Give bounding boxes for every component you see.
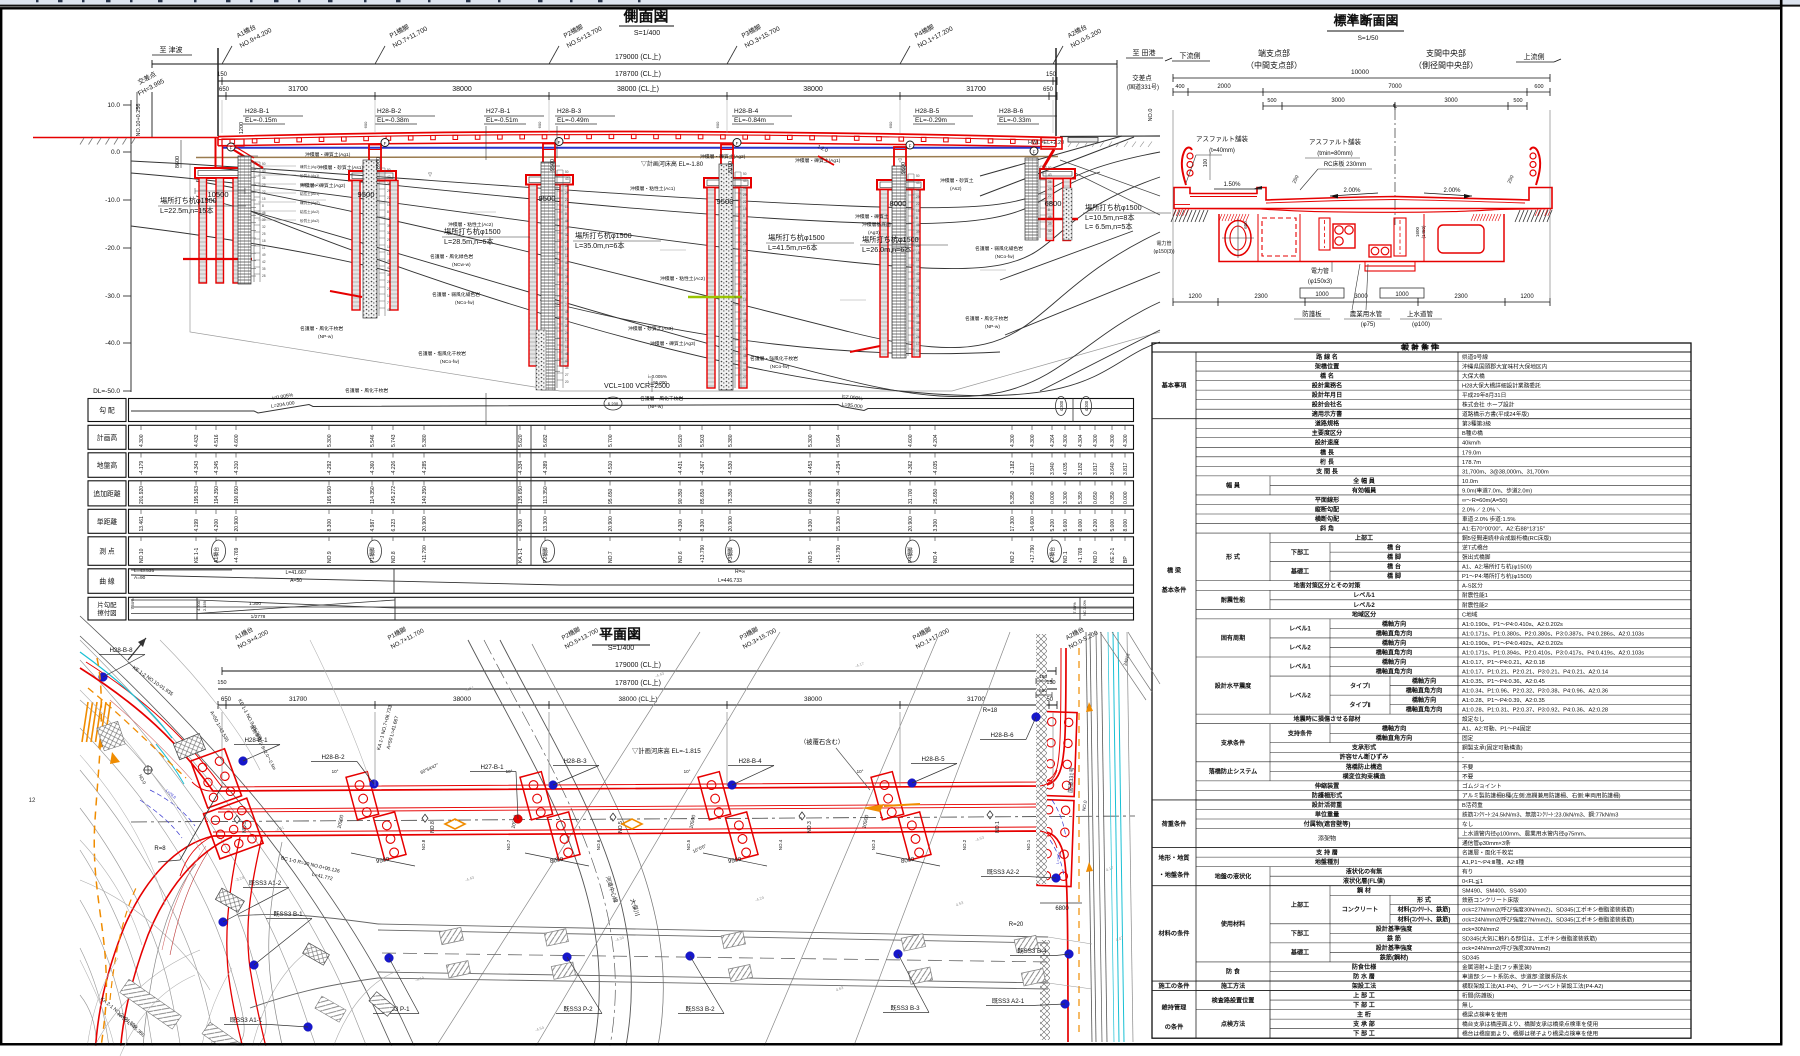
svg-text:9500: 9500 <box>550 159 556 171</box>
svg-text:∞〜R=60m(A=50): ∞〜R=60m(A=50) <box>1462 498 1508 504</box>
svg-text:沖積層・礫質土(Ag2): 沖積層・礫質土(Ag2) <box>700 153 746 160</box>
svg-text:20: 20 <box>565 380 569 384</box>
svg-text:4.200: 4.200 <box>214 519 220 532</box>
svg-text:32: 32 <box>387 231 391 235</box>
svg-text:9500: 9500 <box>717 197 734 206</box>
svg-text:A2橋台: A2橋台 <box>1049 547 1056 563</box>
svg-text:4.300: 4.300 <box>1110 434 1116 447</box>
svg-text:25.650: 25.650 <box>933 488 939 504</box>
svg-text:25: 25 <box>387 238 391 242</box>
svg-text:地形・地質: 地形・地質 <box>1159 854 1190 862</box>
svg-text:コンクリート: コンクリート <box>1342 906 1379 914</box>
svg-text:NO.5: NO.5 <box>808 551 814 563</box>
svg-text:形 式: 形 式 <box>1226 553 1241 561</box>
svg-text:41.350: 41.350 <box>836 488 842 504</box>
svg-text:場所打ち杭φ1500: 場所打ち杭φ1500 <box>768 233 825 242</box>
svg-text:4.300: 4.300 <box>139 434 145 447</box>
svg-text:A1:0.190s、P1〜P4:0.410s、A2:0.20: A1:0.190s、P1〜P4:0.410s、A2:0.202s <box>1462 622 1563 628</box>
svg-text:不要: 不要 <box>1462 773 1474 780</box>
svg-text:32: 32 <box>1048 229 1052 233</box>
svg-text:下 部 工: 下 部 工 <box>1353 1030 1375 1038</box>
svg-text:SM490、SM400、SS400: SM490、SM400、SS400 <box>1462 889 1527 895</box>
svg-text:14: 14 <box>565 296 569 300</box>
svg-text:鋼 材: 鋼 材 <box>1356 887 1371 895</box>
svg-text:1/2778: 1/2778 <box>251 614 266 620</box>
svg-text:42: 42 <box>916 272 920 276</box>
svg-text:材料の条件: 材料の条件 <box>1158 929 1191 937</box>
svg-text:190.650: 190.650 <box>234 486 240 504</box>
svg-text:8.000: 8.000 <box>1123 519 1129 532</box>
svg-text:46: 46 <box>916 223 920 227</box>
svg-text:4.304: 4.304 <box>1078 434 1084 447</box>
svg-text:橋 脚: 橋 脚 <box>1387 553 1401 561</box>
svg-text:(国道331号): (国道331号) <box>1127 83 1159 91</box>
svg-text:-10.0: -10.0 <box>105 197 120 204</box>
svg-text:既SS3 B-3: 既SS3 B-3 <box>890 1005 920 1012</box>
svg-text:4.300: 4.300 <box>1123 434 1129 447</box>
svg-text:材料(ｺﾝｸﾘｰﾄ、鉄筋): 材料(ｺﾝｸﾘｰﾄ、鉄筋) <box>1397 915 1451 923</box>
svg-text:85.650: 85.650 <box>700 488 706 504</box>
svg-text:49: 49 <box>262 253 266 257</box>
svg-text:A-S区分: A-S区分 <box>1462 582 1483 590</box>
svg-text:50: 50 <box>916 174 920 178</box>
svg-text:鋼製支承(固定可動構造): 鋼製支承(固定可動構造) <box>1462 744 1523 752</box>
svg-text:(NCo-fw): (NCo-fw) <box>995 254 1015 260</box>
svg-text:P1橋脚: P1橋脚 <box>369 547 376 563</box>
svg-text:600: 600 <box>888 121 893 128</box>
svg-text:車道部:シート系防水、歩道部:塗膜系防水: 車道部:シート系防水、歩道部:塗膜系防水 <box>1462 972 1568 980</box>
svg-text:-40.0: -40.0 <box>105 340 120 347</box>
svg-text:施工の条件: 施工の条件 <box>1159 982 1191 990</box>
svg-text:名護層・風化千枚岩: 名護層・風化千枚岩 <box>640 395 683 402</box>
svg-text:1.50%: 1.50% <box>1223 182 1241 188</box>
svg-text:場所打ち杭φ1500: 場所打ち杭φ1500 <box>1085 203 1142 212</box>
svg-text:5.200: 5.200 <box>1050 519 1056 532</box>
svg-text:1000: 1000 <box>1395 292 1409 298</box>
svg-text:L=22.5m,n=15本: L=22.5m,n=15本 <box>160 206 214 215</box>
svg-text:固有周期: 固有周期 <box>1221 634 1245 642</box>
svg-text:20.900: 20.900 <box>422 516 428 532</box>
svg-text:600: 600 <box>1243 221 1248 229</box>
svg-text:8: 8 <box>387 210 389 214</box>
svg-text:H28-B-1: H28-B-1 <box>245 108 270 115</box>
svg-text:NO.1: NO.1 <box>1063 551 1069 563</box>
svg-text:4.600: 4.600 <box>234 434 240 447</box>
svg-text:H28-B-5: H28-B-5 <box>915 108 940 115</box>
svg-text:落橋防止構造: 落橋防止構造 <box>1346 763 1383 771</box>
svg-text:橋軸方向: 橋軸方向 <box>1382 658 1406 666</box>
svg-text:支持条件: 支持条件 <box>1287 729 1312 737</box>
svg-text:29: 29 <box>743 193 747 197</box>
svg-text:15: 15 <box>565 205 569 209</box>
svg-text:8: 8 <box>565 212 567 216</box>
svg-text:(NP-w): (NP-w) <box>985 324 1000 330</box>
svg-text:沖積層・砂質土(As3): 沖積層・砂質土(As3) <box>628 325 673 332</box>
svg-text:28: 28 <box>387 280 391 284</box>
svg-text:18: 18 <box>565 247 569 251</box>
svg-text:平面線形: 平面線形 <box>1315 496 1340 504</box>
svg-text:橋 脚: 橋 脚 <box>1387 572 1401 580</box>
svg-text:基礎工: 基礎工 <box>1290 949 1309 957</box>
svg-text:31: 31 <box>743 326 747 330</box>
svg-text:NO.3: NO.3 <box>871 839 876 850</box>
svg-text:名護層・風化千枚岩: 名護層・風化千枚岩 <box>965 315 1008 322</box>
svg-text:NO.3: NO.3 <box>807 821 813 833</box>
svg-text:10500: 10500 <box>207 190 228 199</box>
svg-text:7.50%: 7.50% <box>130 598 135 610</box>
svg-text:路 線 名: 路 線 名 <box>1316 353 1338 361</box>
svg-text:防 水 層: 防 水 層 <box>1353 972 1375 980</box>
svg-text:-4.285: -4.285 <box>422 461 428 475</box>
svg-text:+17.790: +17.790 <box>1030 545 1036 563</box>
svg-text:擦付図: 擦付図 <box>97 608 116 617</box>
svg-text:31700: 31700 <box>966 86 986 93</box>
svg-text:H28-B-3: H28-B-3 <box>563 758 587 765</box>
svg-text:2300: 2300 <box>1454 294 1468 300</box>
svg-text:荷重条件: 荷重条件 <box>1161 820 1188 828</box>
svg-text:-4.431: -4.431 <box>678 461 684 475</box>
svg-text:既SS3 A2-2: 既SS3 A2-2 <box>987 869 1020 876</box>
svg-text:P3橋脚: P3橋脚 <box>727 547 734 563</box>
svg-text:150: 150 <box>1039 674 1047 680</box>
svg-text:4.432: 4.432 <box>194 434 200 447</box>
svg-text:沖積層・砂質土: 沖積層・砂質土 <box>940 177 974 184</box>
svg-text:-4.389: -4.389 <box>543 461 549 475</box>
svg-text:8: 8 <box>1048 208 1050 212</box>
svg-text:SD345: SD345 <box>1462 955 1479 961</box>
svg-text:90.350: 90.350 <box>678 488 684 504</box>
svg-text:砂質土(As2): 砂質土(As2) <box>300 218 319 223</box>
svg-text:NO.4: NO.4 <box>778 839 783 850</box>
svg-text:1200: 1200 <box>1520 294 1534 300</box>
svg-text:（中間支点部）: （中間支点部） <box>1246 60 1302 70</box>
svg-text:NO.7: NO.7 <box>506 839 511 850</box>
svg-text:H28大保大橋詳細設計業務委託: H28大保大橋詳細設計業務委託 <box>1462 382 1541 390</box>
svg-text:既SS3 A1-2: 既SS3 A1-2 <box>249 880 282 887</box>
svg-text:14: 14 <box>743 298 747 302</box>
svg-text:15.300: 15.300 <box>836 516 842 532</box>
svg-text:地盤高: 地盤高 <box>97 461 118 470</box>
svg-text:端支点部: 端支点部 <box>1258 48 1290 58</box>
svg-text:(NCw-w): (NCw-w) <box>452 262 471 268</box>
svg-text:8: 8 <box>262 204 264 208</box>
svg-text:株式会社 ホープ設計: 株式会社 ホープ設計 <box>1462 401 1515 409</box>
svg-text:耐震性能2: 耐震性能2 <box>1462 601 1488 609</box>
svg-text:H28-B-8: H28-B-8 <box>109 647 133 654</box>
svg-text:NO.10: NO.10 <box>139 548 145 563</box>
svg-text:通信管φ30mm×3条: 通信管φ30mm×3条 <box>1462 839 1511 847</box>
svg-text:5.380: 5.380 <box>728 434 734 447</box>
svg-text:500: 500 <box>1513 98 1522 104</box>
svg-text:支 間 長: 支 間 長 <box>1315 467 1339 475</box>
svg-text:礫質土(Ag2): 礫質土(Ag2) <box>300 182 320 187</box>
svg-text:沖積層・礫質土: 沖積層・礫質土 <box>855 213 889 220</box>
svg-text:防食仕様: 防食仕様 <box>1352 963 1377 971</box>
svg-text:39: 39 <box>916 230 920 234</box>
svg-text:名護層・強風化千枚岩: 名護層・強風化千枚岩 <box>750 355 798 362</box>
svg-text:31,700m、3@38,000m、31,700m: 31,700m、3@38,000m、31,700m <box>1462 469 1549 475</box>
svg-text:1600: 1600 <box>1415 226 1420 237</box>
svg-text:22: 22 <box>743 200 747 204</box>
svg-text:18: 18 <box>743 249 747 253</box>
svg-text:勾 配: 勾 配 <box>99 406 115 415</box>
svg-text:21: 21 <box>916 293 920 297</box>
svg-text:0<FL≦1: 0<FL≦1 <box>1462 879 1483 885</box>
svg-text:(Ag3): (Ag3) <box>868 230 880 236</box>
svg-text:沖積層・砂質土(As1): 沖積層・砂質土(As1) <box>318 164 363 171</box>
svg-text:13.461: 13.461 <box>139 516 145 532</box>
svg-text:(t=40mm): (t=40mm) <box>1209 148 1235 154</box>
svg-text:名護層・弱風化繊色岩: 名護層・弱風化繊色岩 <box>432 291 480 298</box>
svg-text:NO.10+0.256: NO.10+0.256 <box>136 104 142 137</box>
svg-text:-4.530: -4.530 <box>728 461 734 475</box>
svg-text:(NP-w): (NP-w) <box>648 404 663 410</box>
svg-text:5.743: 5.743 <box>391 434 397 447</box>
svg-text:43: 43 <box>387 175 391 179</box>
svg-text:粘性土(Ac2): 粘性土(Ac2) <box>300 209 319 214</box>
svg-text:支承形式: 支承形式 <box>1351 744 1377 752</box>
svg-text:H28-B-2: H28-B-2 <box>321 754 345 761</box>
svg-text:A=90: A=90 <box>134 575 146 581</box>
svg-text:18: 18 <box>387 245 391 249</box>
svg-text:伸縮装置: 伸縮装置 <box>1314 782 1339 790</box>
svg-text:計画高: 計画高 <box>97 433 118 442</box>
svg-text:既SS3 A2-1: 既SS3 A2-1 <box>992 998 1025 1005</box>
svg-text:27: 27 <box>565 373 569 377</box>
svg-text:17: 17 <box>743 340 747 344</box>
svg-text:201.920: 201.920 <box>139 486 145 504</box>
svg-text:9500: 9500 <box>539 194 556 203</box>
svg-text:11: 11 <box>916 258 920 262</box>
svg-text:40km/h: 40km/h <box>1462 441 1481 447</box>
svg-text:3.817: 3.817 <box>1123 462 1129 475</box>
svg-text:F: F <box>909 144 912 149</box>
svg-text:7: 7 <box>565 303 567 307</box>
svg-text:8900: 8900 <box>376 157 382 169</box>
svg-text:25: 25 <box>743 242 747 246</box>
svg-text:32: 32 <box>916 237 920 241</box>
svg-text:許容せん断ひずみ: 許容せん断ひずみ <box>1340 753 1389 761</box>
svg-text:24: 24 <box>916 335 920 339</box>
svg-text:KA 1-1: KA 1-1 <box>518 548 524 563</box>
svg-text:46: 46 <box>565 219 569 223</box>
svg-text:単位重量: 単位重量 <box>1315 810 1339 818</box>
svg-text:形 式: 形 式 <box>1417 896 1432 904</box>
svg-text:31: 31 <box>565 324 569 328</box>
svg-text:38000 (CL上): 38000 (CL上) <box>617 84 659 93</box>
svg-text:39: 39 <box>387 224 391 228</box>
svg-text:L= 6.5m,n=5本: L= 6.5m,n=5本 <box>1085 222 1133 231</box>
svg-text:落橋防止システム: 落橋防止システム <box>1209 768 1258 776</box>
svg-text:5.300: 5.300 <box>327 434 333 447</box>
svg-text:28: 28 <box>743 284 747 288</box>
svg-text:145.272: 145.272 <box>391 486 397 504</box>
svg-text:タイプⅠ: タイプⅠ <box>1350 682 1370 690</box>
svg-text:橋台支承は橋座面より、橋脚支承は橋梁点検車を使用: 橋台支承は橋座面より、橋脚支承は橋梁点検車を使用 <box>1462 1020 1598 1028</box>
svg-text:F: F <box>736 141 739 146</box>
svg-text:48: 48 <box>743 354 747 358</box>
svg-text:+11.790: +11.790 <box>422 545 428 563</box>
svg-text:(NCo-fw): (NCo-fw) <box>770 364 790 370</box>
svg-text:4.204: 4.204 <box>933 434 939 447</box>
svg-text:液状化層(FL値): 液状化層(FL値) <box>1343 877 1385 885</box>
svg-text:道路規格: 道路規格 <box>1315 420 1340 428</box>
svg-text:既SS3 B-2: 既SS3 B-2 <box>685 1006 715 1013</box>
svg-text:1000: 1000 <box>1315 292 1329 298</box>
svg-text:農業用水管: 農業用水管 <box>1350 309 1383 318</box>
svg-text:0.350: 0.350 <box>1110 491 1116 504</box>
svg-text:4.200: 4.200 <box>196 600 201 611</box>
svg-text:逆T式橋台: 逆T式橋台 <box>1462 544 1489 552</box>
svg-text:4.300: 4.300 <box>1063 434 1069 447</box>
svg-text:(1450): (1450) <box>1421 225 1426 239</box>
svg-text:150: 150 <box>1046 72 1057 78</box>
svg-text:設計会社名: 設計会社名 <box>1312 401 1342 409</box>
svg-text:下部工: 下部工 <box>1291 548 1309 556</box>
svg-text:10°: 10° <box>684 769 691 774</box>
svg-text:17: 17 <box>916 342 920 346</box>
svg-text:設計年月日: 設計年月日 <box>1312 391 1342 399</box>
svg-text:NO.5: NO.5 <box>686 839 691 850</box>
svg-text:S=1/400: S=1/400 <box>608 645 634 652</box>
svg-text:-4.334: -4.334 <box>518 461 524 475</box>
svg-text:C地域: C地域 <box>1462 610 1478 618</box>
svg-text:F: F <box>558 140 561 145</box>
svg-text:2.0% ⟋ 2.0% ⟍: 2.0% ⟋ 2.0% ⟍ <box>1462 506 1501 513</box>
svg-text:沖積層・礫質土(Ag3): 沖積層・礫質土(Ag3) <box>650 340 696 347</box>
svg-text:名護層・弱風化繊色岩: 名護層・弱風化繊色岩 <box>975 245 1023 252</box>
svg-text:鉄筋(鋼材): 鉄筋(鋼材) <box>1380 953 1408 961</box>
svg-text:大保大橋: 大保大橋 <box>1462 372 1485 380</box>
svg-text:8000: 8000 <box>890 199 907 208</box>
svg-text:5.546: 5.546 <box>370 434 376 447</box>
svg-text:50: 50 <box>262 162 266 166</box>
svg-text:検査路設置位置: 検査路設置位置 <box>1212 996 1255 1004</box>
svg-text:設計業務名: 設計業務名 <box>1312 382 1342 390</box>
svg-text:8: 8 <box>916 216 918 220</box>
svg-text:・地盤条件: ・地盤条件 <box>1159 871 1191 879</box>
svg-text:28: 28 <box>262 274 266 278</box>
svg-text:耐震性能1: 耐震性能1 <box>1462 591 1488 599</box>
svg-text:10: 10 <box>916 349 920 353</box>
svg-text:14: 14 <box>387 294 391 298</box>
svg-text:縦断勾配: 縦断勾配 <box>1315 505 1340 513</box>
svg-text:179.0m: 179.0m <box>1462 450 1481 456</box>
svg-text:P1〜P4:場所打ち杭(φ1500): P1〜P4:場所打ち杭(φ1500) <box>1462 572 1532 580</box>
svg-text:-4.360: -4.360 <box>370 461 376 475</box>
svg-text:橋 台: 橋 台 <box>1387 563 1401 571</box>
svg-text:道路橋示方書(平成24年版): 道路橋示方書(平成24年版) <box>1462 410 1529 418</box>
svg-text:R=18: R=18 <box>983 708 998 714</box>
svg-text:7.50%: 7.50% <box>1072 602 1077 614</box>
svg-text:2.00%: 2.00% <box>1443 188 1461 194</box>
svg-text:A1:右70°00′00″、A2:右88°13′15″: A1:右70°00′00″、A2:右88°13′15″ <box>1462 525 1545 533</box>
svg-text:15: 15 <box>916 209 920 213</box>
svg-text:A1:0.28、P1〜P4:0.39、A2:0.35: A1:0.28、P1〜P4:0.39、A2:0.35 <box>1462 698 1545 704</box>
svg-text:礫質土(Ag1): 礫質土(Ag1) <box>300 164 320 169</box>
svg-text:▽計画河床高 EL=-1.815: ▽計画河床高 EL=-1.815 <box>632 746 701 755</box>
svg-text:14.600: 14.600 <box>1030 516 1036 532</box>
svg-text:35: 35 <box>387 273 391 277</box>
svg-text:4.300: 4.300 <box>1093 434 1099 447</box>
svg-text:43: 43 <box>262 169 266 173</box>
svg-text:橋軸方向: 橋軸方向 <box>1382 639 1406 647</box>
svg-text:4.264: 4.264 <box>1050 434 1056 447</box>
svg-text:地害対策区分とその対策: 地害対策区分とその対策 <box>1294 582 1362 590</box>
svg-text:橋軸直角方向: 橋軸直角方向 <box>1376 629 1413 637</box>
svg-text:21: 21 <box>565 289 569 293</box>
svg-text:レベル2: レベル2 <box>1289 645 1311 652</box>
svg-text:H28-B-4: H28-B-4 <box>738 758 762 765</box>
svg-text:5.000: 5.000 <box>1110 519 1116 532</box>
svg-text:固定: 固定 <box>1462 734 1474 742</box>
svg-text:L=41.5m,n=6本: L=41.5m,n=6本 <box>768 243 818 252</box>
svg-text:アスファルト舗装: アスファルト舗装 <box>1309 137 1362 146</box>
svg-text:36: 36 <box>743 186 747 190</box>
svg-text:橋軸直角方向: 橋軸直角方向 <box>1376 667 1413 675</box>
svg-text:B種の橋: B種の橋 <box>1462 429 1483 437</box>
svg-text:32: 32 <box>743 235 747 239</box>
svg-text:鋼5径間連続非合成鈑桁橋(RC床版): 鋼5径間連続非合成鈑桁橋(RC床版) <box>1462 534 1551 542</box>
svg-text:38000: 38000 <box>803 86 823 93</box>
svg-text:7: 7 <box>387 301 389 305</box>
svg-text:交差点: 交差点 <box>1132 73 1152 82</box>
svg-text:46: 46 <box>387 217 391 221</box>
svg-text:0.0: 0.0 <box>111 149 120 156</box>
svg-text:付属物(遮音壁等): 付属物(遮音壁等) <box>1304 820 1351 828</box>
svg-text:500: 500 <box>1267 98 1276 104</box>
svg-text:15: 15 <box>1048 201 1052 205</box>
svg-text:114.350: 114.350 <box>370 486 376 504</box>
svg-text:NO.4: NO.4 <box>933 551 939 563</box>
svg-text:BP: BP <box>1123 556 1129 563</box>
svg-text:橋 梁: 橋 梁 <box>1167 567 1182 575</box>
svg-text:L=26.0m,n=6本: L=26.0m,n=6本 <box>862 245 912 254</box>
svg-text:設計活荷重: 設計活荷重 <box>1312 801 1342 809</box>
svg-text:2000: 2000 <box>1217 84 1231 90</box>
svg-text:不要: 不要 <box>1462 764 1474 771</box>
svg-text:38: 38 <box>743 319 747 323</box>
svg-text:EL=-0.51m: EL=-0.51m <box>486 117 518 124</box>
svg-text:45: 45 <box>565 310 569 314</box>
svg-text:50: 50 <box>1048 166 1052 170</box>
svg-text:NO.9: NO.9 <box>327 551 333 563</box>
svg-text:橋軸直角方向: 橋軸直角方向 <box>1376 648 1413 656</box>
svg-text:49: 49 <box>565 261 569 265</box>
svg-text:場所打ち杭φ1500: 場所打ち杭φ1500 <box>862 235 919 244</box>
svg-text:架設工法: 架設工法 <box>1351 982 1376 990</box>
svg-text:43: 43 <box>1048 173 1052 177</box>
svg-text:5.300: 5.300 <box>808 434 814 447</box>
svg-text:σck=30N/mm2: σck=30N/mm2 <box>1462 927 1499 933</box>
svg-text:NO.8: NO.8 <box>421 839 426 850</box>
svg-text:9500: 9500 <box>358 190 375 199</box>
svg-text:鉄筋ｺﾝｸﾘｰﾄ:24.5kN/m3、無筋ｺﾝｸﾘｰﾄ:23: 鉄筋ｺﾝｸﾘｰﾄ:24.5kN/m3、無筋ｺﾝｸﾘｰﾄ:23.0kN/m3、鋼:… <box>1462 810 1618 818</box>
svg-text:+4.769: +4.769 <box>234 547 240 563</box>
svg-text:0.000: 0.000 <box>1123 491 1129 504</box>
svg-text:名護層・風化千枚岩: 名護層・風化千枚岩 <box>345 387 388 394</box>
svg-text:165.650: 165.650 <box>327 486 333 504</box>
svg-text:A1,P1〜P4:Ⅲ種、A2:Ⅱ種: A1,P1〜P4:Ⅲ種、A2:Ⅱ種 <box>1462 858 1524 866</box>
svg-text:RC床板 230mm: RC床板 230mm <box>1324 160 1366 168</box>
svg-text:張出式橋脚: 張出式橋脚 <box>1462 553 1491 561</box>
svg-text:橋軸直角方向: 橋軸直角方向 <box>1406 687 1443 695</box>
svg-text:有り: 有り <box>1462 868 1473 876</box>
svg-text:設定なし: 設定なし <box>1462 715 1485 723</box>
svg-text:8: 8 <box>743 214 745 218</box>
svg-text:σck=27N/mm2(呼び強度30N/mm2)、SD345: σck=27N/mm2(呼び強度30N/mm2)、SD345(エポキシ樹脂塗装鉄… <box>1462 906 1634 914</box>
svg-text:36: 36 <box>916 188 920 192</box>
